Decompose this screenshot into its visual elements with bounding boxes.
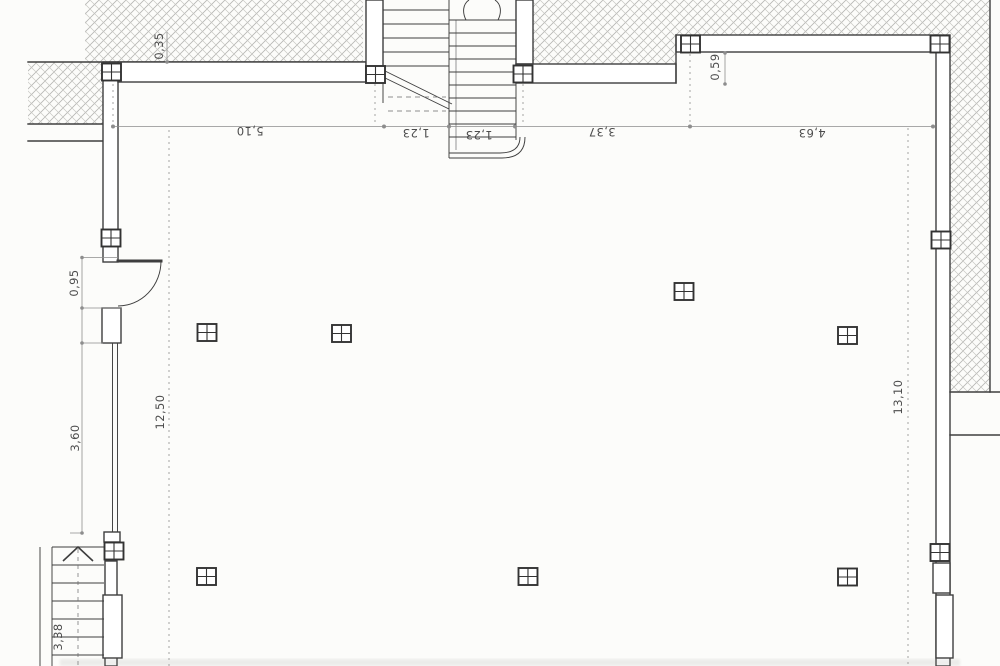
hatch-top-right — [676, 0, 950, 35]
column-plus-marker — [931, 36, 950, 53]
column-markers — [102, 36, 951, 586]
left-wall-stub — [104, 532, 120, 542]
column-plus-marker — [198, 324, 217, 341]
extension-lines — [70, 258, 122, 534]
right-wall-pilaster — [933, 563, 950, 593]
top-wall-mid — [516, 64, 676, 83]
floor-plan-canvas: 3,38 5,10 1,23 1,23 3,37 4,63 0,35 — [0, 0, 1000, 666]
column-plus-marker — [514, 66, 533, 83]
right-wall-pilaster — [936, 595, 953, 658]
top-wall-left — [118, 62, 366, 82]
dim-top-1: 5,10 — [236, 124, 263, 138]
stair-break-line — [383, 70, 452, 109]
hidden-treads — [388, 97, 446, 111]
left-wall-pilaster — [102, 308, 121, 343]
column-plus-marker — [366, 66, 385, 83]
column-plus-marker — [932, 232, 951, 249]
column-plus-marker — [197, 568, 216, 585]
hatch-left-corner — [28, 62, 103, 124]
column-plus-marker — [332, 325, 351, 342]
dim-top-2: 1,23 — [402, 126, 429, 140]
scan-shadow — [60, 659, 960, 666]
column-plus-marker — [105, 543, 124, 560]
left-wall-pilaster — [103, 595, 122, 658]
door-swing — [103, 261, 161, 308]
column-plus-marker — [681, 36, 700, 53]
dim-offset-right: 0,59 — [708, 53, 722, 80]
lower-staircase: 3,38 — [40, 547, 104, 666]
hatch-right-band — [950, 0, 990, 392]
tread-lines-right-flight — [449, 20, 516, 137]
left-partition-lines — [113, 343, 118, 533]
dim-room-depth-left: 12,50 — [153, 395, 167, 430]
dim-top-5: 4,63 — [798, 126, 825, 140]
scanned-floor-plan: 3,38 5,10 1,23 1,23 3,37 4,63 0,35 — [0, 0, 1000, 666]
dim-top-4: 3,37 — [588, 125, 615, 139]
column-plus-marker — [675, 283, 694, 300]
column-plus-marker — [102, 230, 121, 247]
column-plus-marker — [102, 64, 121, 81]
column-plus-marker — [519, 568, 538, 585]
dim-top-3: 1,23 — [465, 128, 492, 142]
dim-stair-run: 3,38 — [51, 623, 65, 650]
door-arc — [118, 261, 161, 306]
dim-door-opening: 0,95 — [67, 269, 81, 296]
stairwell-wall-right — [516, 0, 533, 64]
column-plus-marker — [838, 327, 857, 344]
hatch-top-left — [85, 0, 363, 62]
column-plus-marker — [838, 569, 857, 586]
dim-left-segment: 3,60 — [68, 424, 82, 451]
stair-top-curves — [464, 0, 501, 20]
dim-wall-thickness: 0,35 — [152, 32, 166, 59]
column-plus-marker — [931, 544, 950, 561]
dim-room-depth-right: 13,10 — [891, 380, 905, 415]
hatch-top-mid — [533, 0, 676, 64]
tread-lines-left-flight — [383, 10, 449, 66]
top-wall-right — [676, 35, 936, 52]
